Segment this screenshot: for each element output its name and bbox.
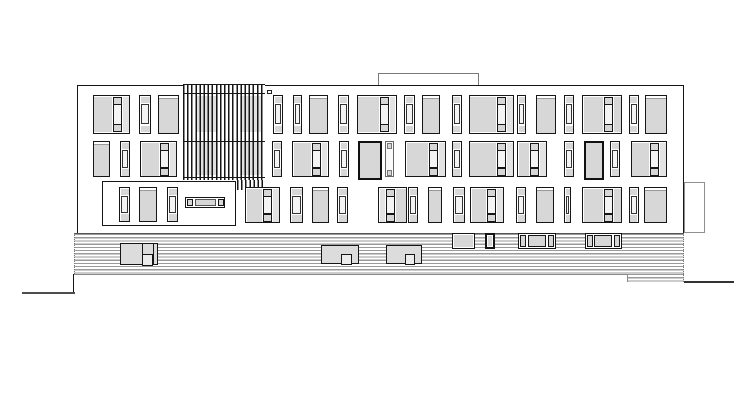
- bar-seg: [454, 235, 474, 247]
- sash-pane-top: [313, 144, 320, 150]
- window-pane-bottom: [410, 215, 417, 222]
- deck-hatch-step: [627, 274, 684, 283]
- deck-planter: [386, 245, 422, 264]
- window-narrow: [629, 95, 639, 134]
- planter-inner-box: [405, 254, 416, 265]
- sash-pane-bottom: [114, 125, 121, 131]
- deck-bench-bar: [518, 233, 556, 249]
- window-pane-bottom: [518, 215, 525, 222]
- window-glass: [519, 143, 530, 176]
- sash-pane-bottom: [161, 169, 168, 175]
- window-side-strip: [507, 143, 513, 176]
- window-pane-mid: [339, 196, 346, 214]
- sash-pane-bottom: [387, 215, 394, 221]
- window-pane-bottom: [566, 215, 570, 222]
- window-medium: [422, 95, 441, 134]
- window-pane-bottom: [612, 169, 619, 176]
- bar-seg: [488, 236, 492, 246]
- window-side-strip: [273, 189, 279, 222]
- window-narrow: [167, 187, 178, 222]
- window-pane-mid: [410, 196, 416, 214]
- window-sash: [650, 143, 659, 176]
- window-large: [469, 95, 515, 134]
- sash-pane-mid: [651, 151, 658, 167]
- window-medium: [536, 95, 556, 134]
- window-pane-mid: [121, 196, 128, 213]
- sash-pane-top: [605, 98, 612, 104]
- window-pane-mid: [274, 150, 280, 168]
- sash-pane-bottom: [488, 215, 495, 221]
- louver-slats: [183, 84, 265, 181]
- window-pane-top: [566, 97, 573, 104]
- window-side-strip: [123, 97, 129, 133]
- window-side-strip: [390, 97, 396, 133]
- window-pane-bottom: [340, 126, 348, 133]
- window-sash: [497, 97, 506, 133]
- window-medium: [158, 95, 179, 134]
- window-narrow: [338, 95, 349, 134]
- window-medium: [93, 141, 111, 177]
- window-medium: [428, 187, 442, 223]
- window-pane-mid: [612, 150, 618, 168]
- sash-pane-mid: [313, 151, 320, 167]
- window-large: [469, 141, 515, 177]
- window-pane-mid: [566, 150, 572, 168]
- sash-pane-mid: [381, 105, 388, 124]
- window-side-strip: [614, 97, 621, 133]
- sash-pane-bottom: [430, 169, 437, 175]
- window-pane-bottom: [453, 169, 460, 176]
- window-pane-bottom: [141, 126, 150, 133]
- sash-pane-bottom: [381, 125, 388, 131]
- window-narrow: [404, 95, 415, 134]
- window-glass: [313, 191, 328, 222]
- window-pane-bottom: [453, 126, 460, 133]
- window-glass: [142, 143, 160, 176]
- window-large: [582, 187, 622, 223]
- window-narrow: [139, 95, 151, 134]
- window-pane-top: [630, 97, 637, 104]
- sash-pane-top: [114, 98, 121, 104]
- sash-pane-mid: [498, 151, 505, 167]
- sash-pane-mid: [430, 151, 437, 167]
- window-pane-top: [453, 143, 460, 150]
- window-pane-mid: [454, 104, 460, 124]
- window-large: [517, 141, 547, 177]
- window-large: [245, 187, 280, 223]
- window-pane-top: [294, 97, 301, 104]
- sash-pane-mid: [488, 197, 495, 213]
- window-glass: [94, 97, 112, 133]
- window-narrow: [272, 141, 282, 177]
- window-pane-top: [519, 97, 525, 104]
- window-dark-frame: [358, 141, 383, 180]
- window-pane-mid: [340, 104, 347, 124]
- window-pane-mid: [566, 104, 572, 124]
- sash-pane-bottom: [531, 169, 538, 175]
- window-sash: [312, 143, 321, 176]
- window-narrow: [516, 187, 526, 223]
- window-narrow: [517, 95, 526, 134]
- bar-seg: [614, 235, 620, 247]
- window-large: [470, 187, 504, 223]
- window-side-strip: [380, 189, 385, 222]
- parapet-notch: [267, 90, 273, 94]
- window-glass: [470, 97, 496, 133]
- window-large: [378, 187, 407, 223]
- window-narrow: [564, 141, 574, 177]
- window-glass: [396, 189, 406, 222]
- window-glass: [423, 99, 440, 133]
- window-pane-bottom: [292, 215, 302, 222]
- sash-pane-mid: [114, 105, 121, 124]
- window-sash: [429, 143, 438, 176]
- window-pane-bottom: [630, 126, 637, 133]
- bench-seg-mid: [195, 199, 216, 206]
- sash-pane-bottom: [651, 169, 658, 175]
- window-pane-top: [612, 143, 619, 150]
- sash-pane-mid: [387, 197, 394, 213]
- window-pane-bottom: [169, 214, 177, 221]
- window-side-strip: [507, 97, 513, 133]
- window-large: [357, 95, 397, 134]
- window-glass: [646, 99, 666, 133]
- window-side-strip: [660, 143, 666, 176]
- sash-pane-top: [264, 190, 271, 196]
- deck-bench-bar: [485, 233, 495, 249]
- window-pane-top: [340, 97, 348, 104]
- window-narrow: [337, 187, 348, 223]
- sash-pane-bottom: [605, 215, 612, 221]
- window-medium: [644, 187, 667, 223]
- sash-pane-top: [161, 144, 168, 150]
- planter-divider: [153, 244, 154, 264]
- window-glass: [310, 99, 327, 133]
- sash-pane-top: [498, 98, 505, 104]
- window-glass: [247, 189, 263, 222]
- ground-drop-line: [73, 274, 74, 294]
- window-pane-mid: [122, 150, 128, 168]
- window-pane-bottom: [275, 126, 282, 133]
- louver-rail: [183, 177, 265, 178]
- strip-pane-mid: [386, 149, 393, 169]
- window-glass: [358, 97, 379, 133]
- window-large: [631, 141, 668, 177]
- window-pane-top: [630, 189, 637, 196]
- window-medium: [645, 95, 667, 134]
- sash-pane-top: [488, 190, 495, 196]
- window-sash: [263, 189, 272, 222]
- window-medium: [312, 187, 329, 223]
- bar-seg: [594, 235, 612, 247]
- window-glass: [470, 143, 496, 176]
- planter-inner-box: [341, 254, 352, 265]
- sash-pane-top: [498, 144, 505, 150]
- window-pane-bottom: [274, 169, 281, 176]
- window-pane-bottom: [121, 214, 129, 221]
- sash-pane-top: [605, 190, 612, 196]
- window-pane-top: [275, 97, 282, 104]
- window-glass: [472, 189, 487, 222]
- window-pane-mid: [519, 104, 524, 124]
- sash-pane-mid: [161, 151, 168, 167]
- window-narrow: [273, 95, 283, 134]
- window-glass: [407, 143, 429, 176]
- window-pane-top: [453, 97, 460, 104]
- window-pane-bottom: [406, 126, 414, 133]
- window-pane-mid: [141, 104, 149, 124]
- louver-rail: [183, 93, 265, 94]
- ground-line-left: [22, 292, 75, 294]
- window-sash: [604, 97, 613, 133]
- sash-pane-top: [387, 190, 394, 196]
- deck-bench-bar: [585, 233, 622, 249]
- window-pane-bottom: [519, 126, 525, 133]
- window-pane-top: [292, 189, 302, 196]
- annex-outline: [684, 182, 705, 233]
- window-pane-bottom: [122, 169, 129, 176]
- window-sash: [604, 189, 613, 222]
- sash-pane-bottom: [605, 125, 612, 131]
- window-pane-bottom: [339, 215, 347, 222]
- sash-pane-top: [381, 98, 388, 104]
- window-narrow: [452, 95, 462, 134]
- window-narrow: [610, 141, 620, 177]
- window-glass: [429, 191, 441, 222]
- roof-penthouse-outline: [378, 73, 479, 86]
- window-narrow: [453, 187, 465, 223]
- window-pane-mid: [169, 196, 176, 213]
- sash-pane-mid: [605, 197, 612, 213]
- window-glass: [537, 99, 555, 133]
- bar-seg: [587, 235, 593, 247]
- deck-bench-bar: [452, 233, 476, 249]
- sash-pane-bottom: [498, 125, 505, 131]
- window-pane-top: [121, 189, 129, 196]
- window-narrow: [408, 187, 418, 223]
- window-narrow: [293, 95, 303, 134]
- window-glass: [584, 97, 604, 133]
- sash-pane-mid: [605, 105, 612, 124]
- window-narrow: [290, 187, 303, 223]
- window-pane-top: [518, 189, 525, 196]
- window-pane-mid: [454, 150, 460, 168]
- window-sash: [530, 143, 539, 176]
- bench-seg-right: [218, 199, 224, 207]
- window-medium: [309, 95, 328, 134]
- window-pane-top: [141, 97, 150, 104]
- window-side-strip: [614, 189, 621, 222]
- window-pane-top: [406, 97, 414, 104]
- sash-pane-mid: [264, 197, 271, 213]
- window-pane-mid: [275, 104, 281, 124]
- sash-pane-mid: [531, 151, 538, 167]
- window-pane-top: [566, 189, 570, 196]
- window-medium: [139, 187, 158, 222]
- elevation-drawing: [0, 0, 755, 412]
- window-pane-top: [274, 143, 281, 150]
- window-pane-bottom: [566, 126, 573, 133]
- strip-pane-top: [387, 143, 393, 149]
- window-glass: [645, 191, 666, 222]
- window-narrow: [339, 141, 349, 177]
- window-narrow: [120, 141, 130, 177]
- window-narrow: [119, 187, 130, 222]
- louver-rail: [183, 141, 265, 142]
- window-large: [93, 95, 131, 134]
- window-dark-frame: [584, 141, 604, 180]
- sash-pane-bottom: [498, 169, 505, 175]
- window-pane-mid: [406, 104, 413, 124]
- window-large: [405, 141, 446, 177]
- sash-pane-mid: [498, 105, 505, 124]
- window-side-strip: [439, 143, 445, 176]
- window-glass: [140, 191, 157, 221]
- bench-seg-left: [187, 199, 193, 207]
- sash-pane-bottom: [313, 169, 320, 175]
- window-pane-mid: [631, 104, 637, 124]
- window-large: [292, 141, 329, 177]
- window-large: [140, 141, 177, 177]
- sash-pane-bottom: [264, 215, 271, 221]
- window-pane-mid: [295, 104, 301, 124]
- bar-seg: [520, 235, 526, 247]
- window-side-strip: [322, 143, 328, 176]
- sash-pane-top: [531, 144, 538, 150]
- window-sash: [380, 97, 389, 133]
- window-pane-top: [341, 143, 348, 150]
- sash-pane-top: [430, 144, 437, 150]
- window-side-strip: [497, 189, 503, 222]
- window-pane-bottom: [341, 169, 348, 176]
- window-sash: [497, 143, 506, 176]
- window-narrow: [564, 95, 574, 134]
- window-glass: [94, 145, 110, 176]
- ground-line-right: [684, 281, 734, 283]
- window-lightstrip: [385, 141, 394, 177]
- planter-inner-box: [142, 254, 154, 266]
- deck-bottom-line: [74, 274, 627, 275]
- window-sash: [160, 143, 169, 176]
- window-pane-mid: [341, 150, 347, 168]
- window-pane-top: [410, 189, 417, 196]
- window-pane-mid: [631, 196, 637, 214]
- window-narrow: [452, 141, 462, 177]
- window-pane-mid: [518, 196, 524, 214]
- window-sash: [113, 97, 122, 133]
- window-glass: [537, 191, 554, 222]
- window-pane-top: [122, 143, 129, 150]
- window-pane-top: [339, 189, 347, 196]
- window-pane-bottom: [455, 215, 464, 222]
- window-large: [582, 95, 622, 134]
- window-pane-bottom: [294, 126, 301, 133]
- window-glass: [584, 189, 604, 222]
- deck-planter: [120, 243, 158, 265]
- window-side-strip: [170, 143, 176, 176]
- window-pane-mid: [292, 196, 301, 214]
- strip-pane-bottom: [387, 170, 393, 176]
- window-pane-top: [455, 189, 464, 196]
- window-sash: [386, 189, 395, 222]
- sash-pane-top: [651, 144, 658, 150]
- window-pane-top: [566, 143, 573, 150]
- window-glass: [159, 99, 178, 133]
- window-pane-bottom: [630, 215, 637, 222]
- window-narrow: [564, 187, 571, 223]
- recess-bench-window: [185, 197, 225, 208]
- window-pane-bottom: [566, 169, 573, 176]
- window-sash: [487, 189, 496, 222]
- window-glass: [632, 143, 649, 176]
- deck-planter: [321, 245, 359, 264]
- window-medium: [536, 187, 555, 223]
- bar-seg: [528, 235, 547, 247]
- window-pane-mid: [566, 196, 569, 214]
- window-side-strip: [540, 143, 546, 176]
- window-pane-mid: [455, 196, 463, 214]
- bar-seg: [548, 235, 554, 247]
- window-pane-top: [169, 189, 177, 196]
- window-narrow: [629, 187, 639, 223]
- window-glass: [294, 143, 311, 176]
